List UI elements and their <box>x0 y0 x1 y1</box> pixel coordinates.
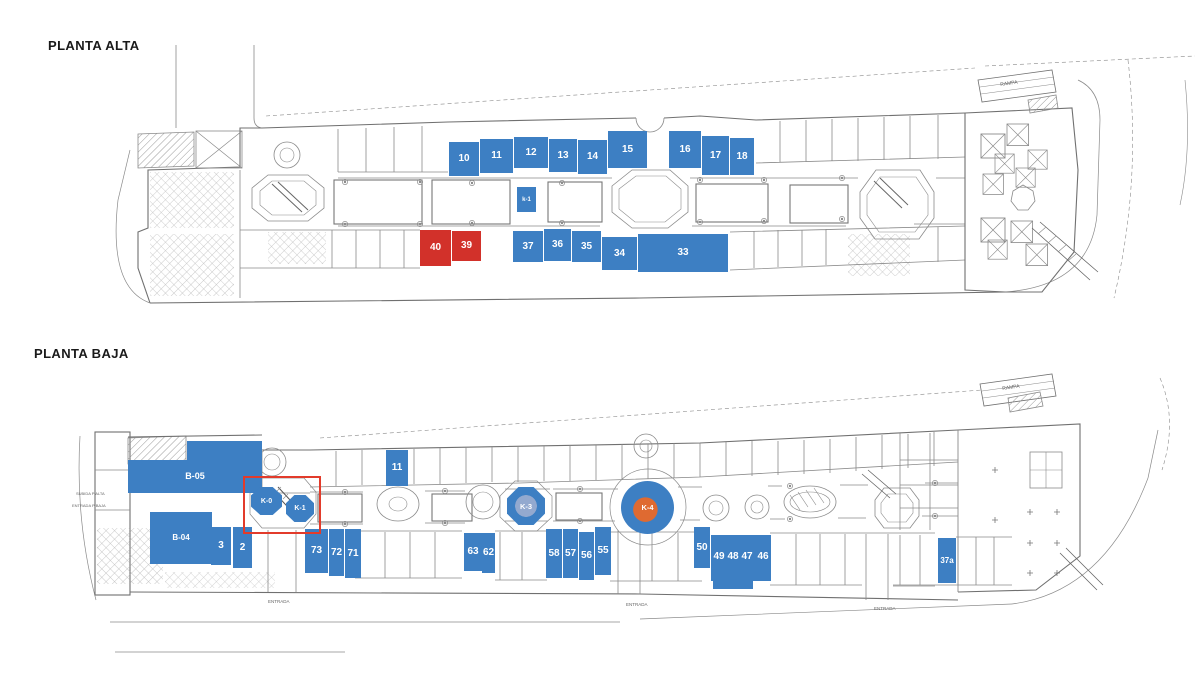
unit-alta-40: 40 <box>420 230 451 266</box>
unit-alta-17: 17 <box>702 136 729 175</box>
unit-alta-16: 16 <box>669 131 701 168</box>
unit-alta-12: 12 <box>514 137 548 168</box>
unit-baja-48: 48 <box>726 549 740 565</box>
unit-baja-area <box>713 580 753 589</box>
unit-alta-39: 39 <box>452 231 481 261</box>
unit-baja-63: 63 <box>464 533 482 571</box>
side-label-subida: SUBIDA P ALTA <box>76 491 105 496</box>
unit-alta-15: 15 <box>608 131 647 168</box>
entrance-label-3: ENTRADA <box>874 606 896 611</box>
kiosk-k0-label: K-0 <box>261 498 272 505</box>
unit-baja-11: 11 <box>386 450 408 486</box>
unit-alta-37: 37 <box>513 231 543 262</box>
unit-baja-B-05: B-05 <box>128 460 262 493</box>
kiosk-k0: K-0 <box>251 487 282 515</box>
kiosk-k1-label: K-1 <box>294 505 305 512</box>
unit-alta-k-1: k-1 <box>517 187 536 212</box>
planta-baja-title: PLANTA BAJA <box>34 346 129 361</box>
unit-baja-46: 46 <box>756 549 770 565</box>
kiosk-k3-label: K-3 <box>520 502 532 511</box>
planta-alta-title: PLANTA ALTA <box>48 38 140 53</box>
unit-baja-49: 49 <box>712 549 726 565</box>
entrance-label-1: ENTRADA <box>268 599 290 604</box>
unit-alta-11: 11 <box>480 139 513 173</box>
unit-baja-47: 47 <box>740 549 754 565</box>
unit-baja-area <box>187 441 262 462</box>
unit-baja-62: 62 <box>482 533 495 573</box>
kiosk-k3: K-3 <box>507 487 545 525</box>
unit-baja-73: 73 <box>305 529 328 573</box>
unit-baja-56: 56 <box>579 532 594 580</box>
unit-baja-3: 3 <box>211 527 231 565</box>
plan-linework <box>0 0 1200 680</box>
unit-alta-10: 10 <box>449 142 479 176</box>
unit-alta-14: 14 <box>578 140 607 174</box>
side-label-entrada: ENTRADA P BAJA <box>72 503 106 508</box>
unit-baja-58: 58 <box>546 529 562 578</box>
kiosk-k4: K-4 <box>621 481 674 534</box>
entrance-label-2: ENTRADA <box>626 602 648 607</box>
unit-baja-37a: 37a <box>938 538 956 583</box>
unit-alta-35: 35 <box>572 231 601 262</box>
unit-alta-13: 13 <box>549 139 577 172</box>
unit-alta-34: 34 <box>602 237 637 270</box>
unit-baja-57: 57 <box>563 529 578 578</box>
unit-baja-50: 50 <box>694 527 710 568</box>
unit-baja-B-04: B-04 <box>150 512 212 564</box>
unit-alta-18: 18 <box>730 138 754 175</box>
unit-baja-55: 55 <box>595 527 611 575</box>
kiosk-k4-label: K-4 <box>641 503 653 512</box>
unit-baja-71: 71 <box>345 529 361 578</box>
unit-alta-33: 33 <box>638 234 728 272</box>
unit-baja-72: 72 <box>329 529 344 576</box>
mall-floor-plans: PLANTA ALTA PLANTA BAJA 1011121314151617… <box>0 0 1200 680</box>
unit-alta-36: 36 <box>544 229 571 261</box>
